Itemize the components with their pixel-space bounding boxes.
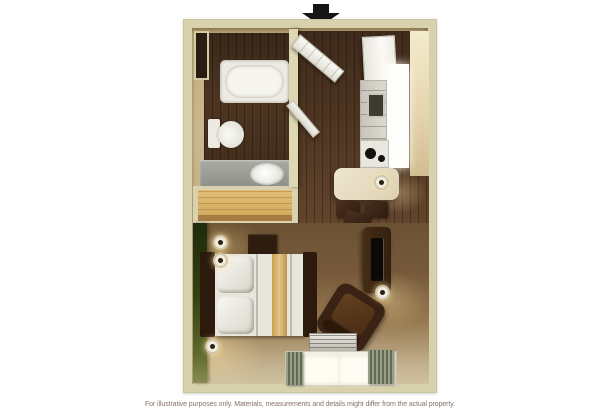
- curtain: [286, 352, 303, 385]
- closet-shelf-edge: [198, 215, 292, 221]
- wall-sconce-light: [213, 253, 228, 268]
- wall-sconce-light: [205, 339, 220, 354]
- wall-sconce-core: [218, 240, 223, 245]
- bed-runner: [272, 254, 287, 336]
- disclaimer-text: For illustrative purposes only. Material…: [0, 401, 600, 408]
- stove-burner: [378, 155, 385, 162]
- stove-cooktop: [360, 140, 389, 168]
- wall-sconce-core: [379, 180, 384, 185]
- wall-sconce-core: [380, 290, 385, 295]
- microwave: [367, 93, 385, 118]
- kitchen-counter: [387, 64, 409, 168]
- bedding-fold: [256, 254, 258, 336]
- curtain: [368, 350, 394, 384]
- bed: [215, 254, 304, 336]
- nightstand: [248, 234, 277, 256]
- bed-footboard: [303, 252, 317, 337]
- bathroom-shelf-niche: [194, 31, 209, 80]
- wall-sconce-light: [375, 285, 390, 300]
- ac-unit: [309, 333, 357, 353]
- bedding-fold: [290, 254, 292, 336]
- stove-burner: [365, 148, 376, 159]
- wall-sconce-light: [213, 235, 228, 250]
- bed-headboard: [200, 252, 215, 337]
- window-pane: [302, 358, 337, 382]
- tv-stand: [363, 227, 391, 293]
- television: [371, 238, 384, 281]
- floorplan-image: For illustrative purposes only. Material…: [0, 0, 600, 420]
- wall-sconce-core: [210, 344, 215, 349]
- closet: [193, 186, 298, 226]
- toilet: [218, 121, 244, 148]
- wall-sconce-light: [374, 175, 389, 190]
- pillow: [217, 297, 254, 334]
- wall-sconce-core: [218, 258, 223, 263]
- closet-shelf: [198, 190, 292, 216]
- dining-table: [334, 168, 399, 200]
- floorplan: [183, 19, 437, 393]
- bathtub: [220, 60, 289, 103]
- bathroom-sink: [250, 163, 284, 185]
- kitchen-wall: [410, 31, 429, 176]
